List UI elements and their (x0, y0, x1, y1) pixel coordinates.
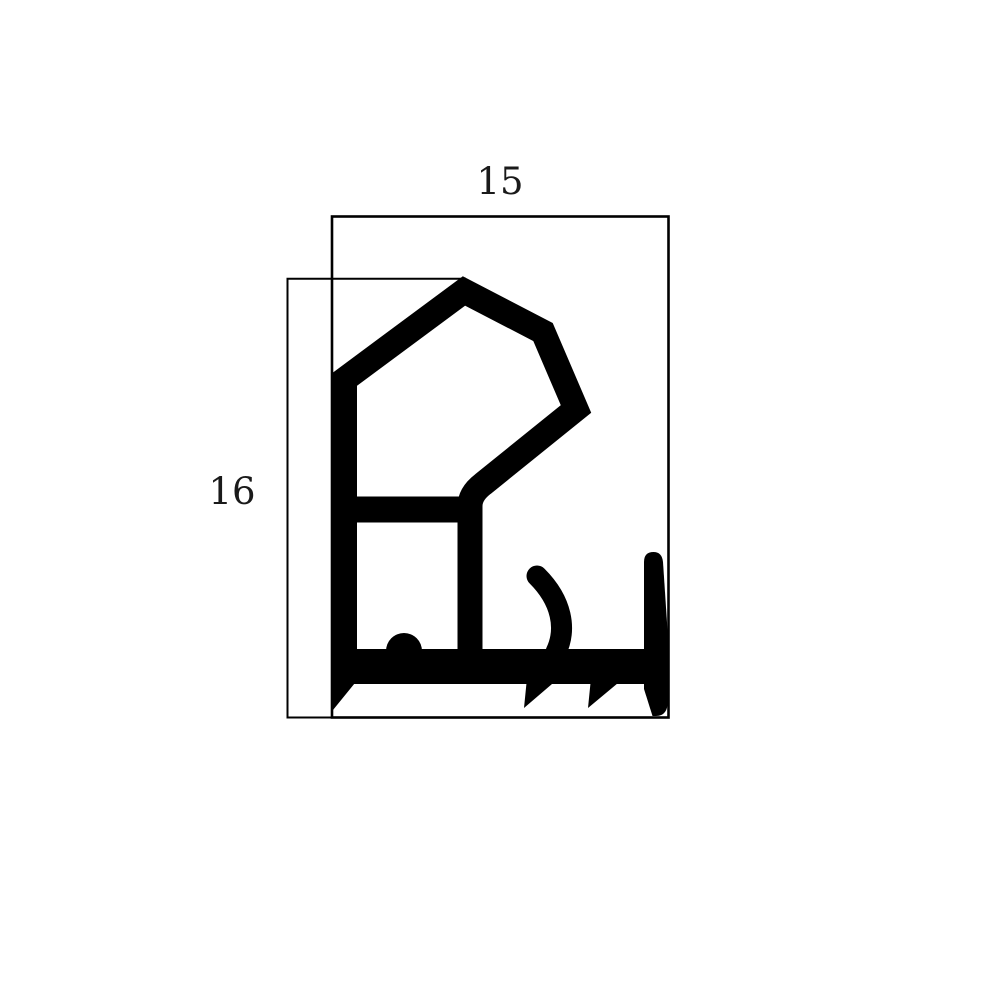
profile-lip-hook (537, 576, 562, 652)
profile-right-flange (644, 552, 668, 716)
profile-main-outline (345, 291, 577, 663)
width-dimension-label: 15 (476, 160, 523, 203)
dimension-labels: 15 16 (208, 160, 523, 513)
profile-left-tail (332, 678, 359, 710)
seal-profile-technical-drawing: 15 16 (0, 0, 1000, 1000)
profile-bump (386, 633, 422, 651)
profile-tooth-right (588, 678, 624, 708)
height-dimension-label: 16 (208, 470, 255, 513)
drawing-canvas: 15 16 (0, 0, 1000, 1000)
profile-tooth-left (524, 678, 559, 708)
seal-profile (332, 291, 668, 716)
